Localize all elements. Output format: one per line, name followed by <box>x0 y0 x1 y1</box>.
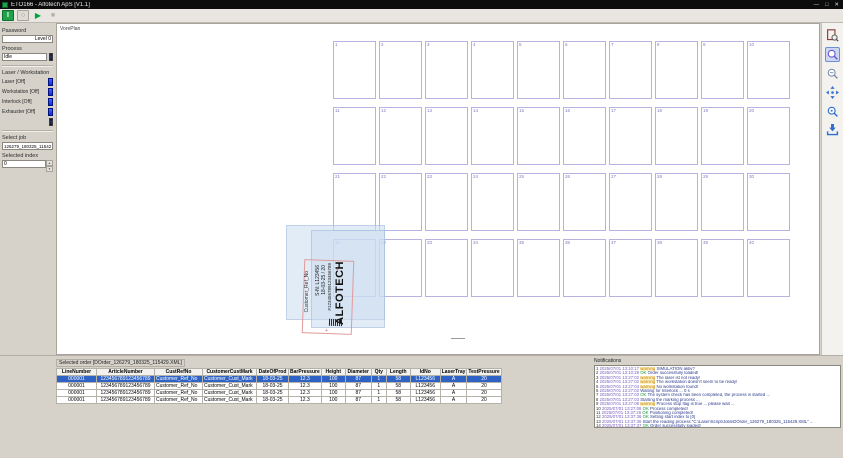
tray-cell: 9 <box>701 41 744 99</box>
notification-message: The workstation doesn't seem to be ready… <box>656 380 737 384</box>
tray-cell: 21 <box>333 173 376 231</box>
process-state-field <box>2 53 47 61</box>
table-cell: 20 <box>467 376 501 383</box>
column-header[interactable]: DateOfProd <box>257 369 289 376</box>
table-row[interactable]: 000001123456789123456789Customer_Ref_NoC… <box>57 397 502 404</box>
tray-cell: 20 <box>747 107 790 165</box>
column-header[interactable]: Diameter <box>345 369 371 376</box>
password-label: Password <box>2 28 53 34</box>
process-indicator <box>49 53 53 61</box>
notification-timestamp: 2025/07/01 13:27:03 <box>600 398 641 402</box>
alignment-cross: + <box>336 268 339 273</box>
maximize-button[interactable]: □ <box>825 2 828 8</box>
notification-message: Start the reading process "C:\Laser\Scri… <box>643 420 814 424</box>
tray-cell: 28 <box>655 173 698 231</box>
load-tray-icon[interactable] <box>825 123 840 138</box>
label-serial-text: S-N: L123456 <box>315 265 321 296</box>
bottom-panel: Selected order [DOrder_126279_180325_115… <box>0 355 843 458</box>
notification-message: SIMULATION aktiv? <box>656 367 694 371</box>
notification-timestamp: 2025/07/01 13:10:28 <box>600 371 641 375</box>
notification-message: Waiting for Interlock ... 0 s <box>640 389 690 393</box>
tray-cell-number: 23 <box>427 174 432 179</box>
alignment-cross: + <box>325 329 328 334</box>
tray-cell: 10 <box>747 41 790 99</box>
tray-cell-number: 19 <box>703 108 708 113</box>
station-indicator <box>49 118 53 126</box>
tray-cell: 5 <box>517 41 560 99</box>
laser-workstation-label: Laser / Workstation <box>2 70 53 76</box>
tray-cell-number: 35 <box>519 240 524 245</box>
table-cell: 123456789123456789 <box>97 397 155 404</box>
tray-cell: 36 <box>563 239 606 297</box>
view-title: VorePlan <box>60 26 80 32</box>
table-cell: 87 <box>345 383 371 390</box>
tray-cell: 6 <box>563 41 606 99</box>
password-field[interactable] <box>2 35 53 43</box>
tray-cell: 25 <box>517 173 560 231</box>
notification-line: 14 2025/07/01 13:37:37 OK Order successf… <box>596 424 839 428</box>
tray-cell: 22 <box>379 173 422 231</box>
label-customer-text: Customer_Ref_No <box>304 271 310 312</box>
selected-index-field[interactable] <box>2 160 46 168</box>
tray-cell-number: 12 <box>381 108 386 113</box>
table-cell: 12.3 <box>289 376 322 383</box>
notification-message: Setting start index to [0] <box>650 415 695 419</box>
table-row[interactable]: 000001123456789123456789Customer_Ref_NoC… <box>57 383 502 390</box>
table-cell: Customer_Cust_Mark <box>203 376 257 383</box>
tray-cell-number: 37 <box>611 240 616 245</box>
tray-cell-number: 5 <box>519 42 522 47</box>
notification-timestamp: 2025/07/01 13:10:17 <box>600 367 641 371</box>
table-cell: L123456 <box>410 390 440 397</box>
tray-cell-number: 8 <box>657 42 660 47</box>
tray-cell-number: 28 <box>657 174 662 179</box>
table-cell: L123456 <box>410 383 440 390</box>
close-button[interactable]: ✕ <box>834 2 839 8</box>
tray-cell: 19 <box>701 107 744 165</box>
tray-cell-number: 26 <box>565 174 570 179</box>
tray-cell-number: 16 <box>565 108 570 113</box>
table-cell: 87 <box>345 397 371 404</box>
tray-cell-number: 38 <box>657 240 662 245</box>
tray-cell: 13 <box>425 107 468 165</box>
table-cell: L123456 <box>410 397 440 404</box>
spin-down-button[interactable]: ▼ <box>46 166 53 172</box>
tray-cell: 30 <box>747 173 790 231</box>
table-cell: 20 <box>467 397 501 404</box>
toggle-label: Laser [Off] <box>2 79 25 85</box>
status-led <box>48 98 53 106</box>
tray-cell-number: 9 <box>703 42 706 47</box>
notification-timestamp: 2025/07/01 13:27:04 <box>600 385 641 389</box>
table-cell: Customer_Cust_Mark <box>203 383 257 390</box>
table-cell: Customer_Ref_No <box>155 397 203 404</box>
column-header[interactable]: BarPressure <box>289 369 322 376</box>
column-header[interactable]: Length <box>386 369 410 376</box>
status-led <box>48 88 53 96</box>
table-cell: 87 <box>345 390 371 397</box>
zoom-window-icon[interactable] <box>825 66 840 81</box>
table-cell: 000001 <box>57 383 97 390</box>
power-on-button[interactable]: I <box>2 10 14 21</box>
tray-cell-number: 10 <box>749 42 754 47</box>
notifications-list[interactable]: 1 2025/07/01 13:10:17 warning SIMULATION… <box>594 365 841 428</box>
status-led <box>48 108 53 116</box>
tray-cell: 3 <box>425 41 468 99</box>
tray-cell-number: 34 <box>473 240 478 245</box>
notification-message: The system check has been completed, the… <box>648 393 771 397</box>
tray-cell-number: 36 <box>565 240 570 245</box>
tray-cell-number: 21 <box>335 174 340 179</box>
process-label: Process <box>2 46 53 52</box>
tray-cell-number: 40 <box>749 240 754 245</box>
table-row[interactable]: 000001123456789123456789Customer_Ref_NoC… <box>57 376 502 383</box>
start-process-button[interactable]: ▶ <box>35 12 41 20</box>
notification-timestamp: 2025/07/01 13:27:08 <box>600 402 641 406</box>
table-cell: 58 <box>386 390 410 397</box>
tray-cell-number: 24 <box>473 174 478 179</box>
tray-cell: 8 <box>655 41 698 99</box>
tray-cell: 14 <box>471 107 514 165</box>
table-cell: Customer_Ref_No <box>155 383 203 390</box>
notification-tag: OK <box>643 415 649 419</box>
tray-cell: 23 <box>425 173 468 231</box>
tray-cell: 1 <box>333 41 376 99</box>
toggle-row: Interlock [Off] <box>2 98 53 106</box>
table-cell: L123456 <box>410 376 440 383</box>
column-header[interactable]: ArticleNumber <box>97 369 155 376</box>
tray-cell-number: 6 <box>565 42 568 47</box>
notification-timestamp: 2025/07/01 13:37:36 <box>602 415 643 419</box>
tray-cell-number: 22 <box>381 174 386 179</box>
notification-message: Positioning completed! <box>650 411 693 415</box>
tray-cell: 16 <box>563 107 606 165</box>
notification-tag: OK <box>640 371 646 375</box>
table-cell: A <box>440 383 467 390</box>
notification-message: Process stop flag is true ... please wai… <box>656 402 734 406</box>
table-cell: 123456789123456789 <box>97 383 155 390</box>
column-header[interactable]: Qty <box>371 369 386 376</box>
notification-tag: warning <box>640 376 655 380</box>
tray-cell: 34 <box>471 239 514 297</box>
tray-cell-number: 11 <box>335 108 340 113</box>
column-header[interactable]: IdNo <box>410 369 440 376</box>
table-cell: 123456789123456789 <box>97 390 155 397</box>
notification-tag: OK <box>643 424 649 428</box>
table-cell: 100 <box>321 383 345 390</box>
table-cell: 100 <box>321 397 345 404</box>
table-cell: 000001 <box>57 390 97 397</box>
tray-cell: 35 <box>517 239 560 297</box>
notifications-title: Notifications <box>594 358 621 364</box>
tray-cell-number: 4 <box>473 42 476 47</box>
tray-cell-number: 20 <box>749 108 754 113</box>
notification-timestamp: 2025/07/01 13:27:02 <box>600 376 641 380</box>
tray-cell: 18 <box>655 107 698 165</box>
table-cell: 20 <box>467 390 501 397</box>
tray-cell: 2 <box>379 41 422 99</box>
table-cell: 58 <box>386 397 410 404</box>
zoom-region-icon[interactable] <box>825 47 840 62</box>
table-cell: 12.3 <box>289 397 322 404</box>
toggle-list: Laser [Off]Workstation [Off]Interlock [O… <box>2 78 53 116</box>
pan-view-icon[interactable] <box>825 85 840 100</box>
tray-cell-number: 3 <box>427 42 430 47</box>
table-cell: 18-03-25 <box>257 383 289 390</box>
notification-timestamp: 2025/07/01 13:37:26 <box>602 411 643 415</box>
toggle-label: Workstation [Off] <box>2 89 39 95</box>
table-cell: Customer_Ref_No <box>155 390 203 397</box>
status-led <box>48 78 53 86</box>
column-header[interactable]: CustRefNo <box>155 369 203 376</box>
tray-cell-number: 15 <box>519 108 524 113</box>
tray-cell: 32 <box>379 239 422 297</box>
notification-message: Process completed! <box>650 407 688 411</box>
order-table-body: 000001123456789123456789Customer_Ref_NoC… <box>57 376 502 404</box>
tray-cell: 27 <box>609 173 652 231</box>
select-job-field[interactable] <box>2 142 53 150</box>
window-title: ETO166 - Alfotech ApS [V1.1] <box>11 2 814 8</box>
label-barcode <box>329 319 342 326</box>
zoom-fit-icon[interactable] <box>825 104 840 119</box>
notification-message: Order successfully loaded! <box>648 371 699 375</box>
table-cell: 18-03-25 <box>257 376 289 383</box>
notification-tag: warning <box>640 402 655 406</box>
tray-cell: 15 <box>517 107 560 165</box>
table-cell: Customer_Cust_Mark <box>203 390 257 397</box>
table-cell: 1 <box>371 397 386 404</box>
notification-tag: OK <box>643 407 649 411</box>
table-cell: 000001 <box>57 376 97 383</box>
tray-cell: 39 <box>701 239 744 297</box>
tray-cell-number: 17 <box>611 108 616 113</box>
column-header[interactable]: LaserTray <box>440 369 467 376</box>
table-cell: 12.3 <box>289 390 322 397</box>
table-cell: A <box>440 390 467 397</box>
notification-tag: warning <box>640 385 655 389</box>
tray-cell-number: 25 <box>519 174 524 179</box>
toggle-label: Interlock [Off] <box>2 99 32 105</box>
table-cell: 87 <box>345 376 371 383</box>
select-job-label: Select job <box>2 135 53 141</box>
table-cell: 100 <box>321 390 345 397</box>
column-header[interactable]: CustomerCustMark <box>203 369 257 376</box>
notification-timestamp: 2025/07/01 13:37:36 <box>602 420 643 424</box>
table-cell: 123456789123456789 <box>97 376 155 383</box>
column-header[interactable]: TestPressure <box>467 369 501 376</box>
label-article-text: #123456789123456789 <box>327 263 332 311</box>
table-cell: A <box>440 376 467 383</box>
tray-cell-number: 30 <box>749 174 754 179</box>
notification-message: Starting the marking process ... <box>640 398 699 402</box>
view-toolbar <box>821 23 843 355</box>
tray-cell: 12 <box>379 107 422 165</box>
tray-cell: 7 <box>609 41 652 99</box>
table-cell: 18-03-25 <box>257 390 289 397</box>
stop-process-button[interactable]: ■ <box>51 12 55 19</box>
table-cell: 58 <box>386 376 410 383</box>
table-cell: Customer_Cust_Mark <box>203 397 257 404</box>
tray-cell: 4 <box>471 41 514 99</box>
tray-cell-number: 13 <box>427 108 432 113</box>
tray-cell-number: 33 <box>427 240 432 245</box>
app-icon <box>2 2 8 8</box>
tray-cell-number: 2 <box>381 42 384 47</box>
toggle-row: Exhauster [Off] <box>2 108 53 116</box>
notification-message: Order successfully loaded! <box>650 424 701 428</box>
notification-tag: OK <box>640 393 646 397</box>
table-cell: 20 <box>467 383 501 390</box>
tray-cell: 29 <box>701 173 744 231</box>
notification-tag: warning <box>640 367 655 371</box>
column-header[interactable]: LineNumber <box>57 369 97 376</box>
toggle-label: Exhauster [Off] <box>2 109 35 115</box>
notification-message: The laser ist not ready! <box>656 376 700 380</box>
tray-cell: 40 <box>747 239 790 297</box>
tray-cell-number: 18 <box>657 108 662 113</box>
table-cell: 58 <box>386 383 410 390</box>
notification-timestamp: 2025/07/01 13:27:08 <box>602 407 643 411</box>
selected-index-label: Selected index <box>2 153 53 159</box>
table-cell: 1 <box>371 390 386 397</box>
tray-cell: 17 <box>609 107 652 165</box>
notification-tag: OK <box>642 411 648 415</box>
notification-message: No workstation found! <box>656 385 698 389</box>
notification-tag: warning <box>640 380 655 384</box>
app-window: ETO166 - Alfotech ApS [V1.1] — □ ✕ I ○ ▶… <box>0 0 843 458</box>
ruler-mark <box>451 338 465 339</box>
table-cell: 000001 <box>57 397 97 404</box>
tray-cell: 26 <box>563 173 606 231</box>
divider <box>2 65 53 67</box>
doc-magnifier-icon[interactable] <box>825 28 840 43</box>
table-cell: Customer_Ref_No <box>155 376 203 383</box>
table-row[interactable]: 000001123456789123456789Customer_Ref_NoC… <box>57 390 502 397</box>
tray-cell-number: 1 <box>335 42 338 47</box>
tray-cell-number: 7 <box>611 42 614 47</box>
tray-cell-number: 39 <box>703 240 708 245</box>
column-header[interactable]: Height <box>321 369 345 376</box>
tray-cell: 37 <box>609 239 652 297</box>
tray-cell-number: 27 <box>611 174 616 179</box>
notification-timestamp: 2025/07/01 13:27:02 <box>600 380 641 384</box>
tray-cell: 11 <box>333 107 376 165</box>
main-toolbar: I ○ ▶ ■ <box>0 9 843 23</box>
tray-cell: 24 <box>471 173 514 231</box>
tray-cell: 33 <box>425 239 468 297</box>
notification-timestamp: 2025/07/01 13:27:03 <box>600 393 641 397</box>
tray-cell-number: 29 <box>703 174 708 179</box>
order-table-head: LineNumberArticleNumberCustRefNoCustomer… <box>57 369 502 376</box>
toggle-row: Laser [Off] <box>2 78 53 86</box>
table-cell: 100 <box>321 376 345 383</box>
selected-order-label: Selected order [DOrder_126279_180325_115… <box>56 359 185 367</box>
work-canvas[interactable]: VorePlan 1234567891011121314151617181920… <box>56 23 820 355</box>
tray-grid: 1234567891011121314151617181920212223242… <box>333 41 790 297</box>
minimize-button[interactable]: — <box>814 2 820 8</box>
notification-timestamp: 2025/07/01 13:37:37 <box>602 424 643 428</box>
power-off-button[interactable]: ○ <box>17 10 29 21</box>
titlebar: ETO166 - Alfotech ApS [V1.1] — □ ✕ <box>0 0 843 9</box>
table-cell: A <box>440 397 467 404</box>
divider <box>2 130 53 132</box>
tray-cell-number: 14 <box>473 108 478 113</box>
control-panel: Password Process Laser / Workstation Las… <box>0 23 55 355</box>
table-cell: 1 <box>371 376 386 383</box>
table-cell: 12.3 <box>289 383 322 390</box>
table-cell: 18-03-25 <box>257 397 289 404</box>
table-cell: 1 <box>371 383 386 390</box>
notification-timestamp: 2025/07/01 13:27:02 <box>600 389 641 393</box>
order-table: LineNumberArticleNumberCustRefNoCustomer… <box>56 368 502 404</box>
toggle-row: Workstation [Off] <box>2 88 53 96</box>
tray-cell: 38 <box>655 239 698 297</box>
label-date-text: 18-03-25 / 20 <box>321 265 327 295</box>
